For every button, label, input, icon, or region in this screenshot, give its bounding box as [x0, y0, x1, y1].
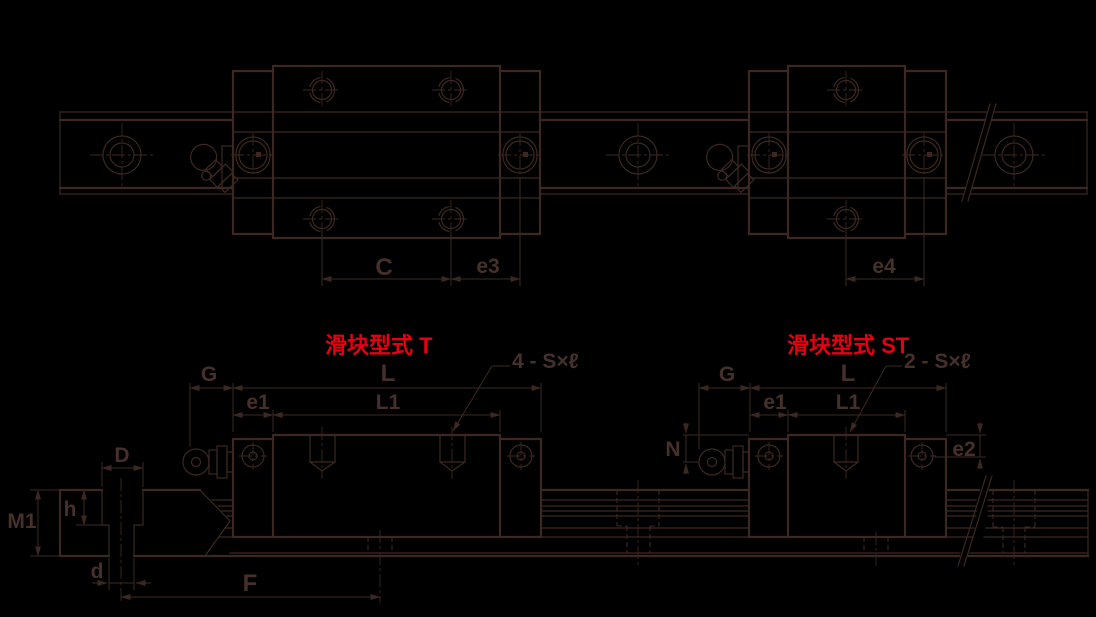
- tap-hole-t2: [440, 435, 465, 471]
- block-st-dimensions: G L e1 L1 2 - S×ℓ N e2: [665, 350, 986, 474]
- block-st-side-view: [699, 427, 946, 537]
- dim-label-e1-st: e1: [763, 391, 787, 414]
- title-block-type-st: 滑块型式 ST: [787, 333, 910, 358]
- grease-nipple-st-side: [699, 446, 749, 478]
- grease-nipple-t-side: [183, 446, 233, 478]
- dim-label-e1-t: e1: [246, 391, 270, 414]
- screw-spec-st: 2 - S×ℓ: [904, 350, 971, 373]
- block-t-top-view: [183, 66, 542, 238]
- block-t-side-view: [183, 427, 541, 537]
- block-t-dimensions: G L e1 L1 4 - S×ℓ: [190, 350, 579, 447]
- block-st-tap-holes: [827, 71, 865, 238]
- dim-label-h: h: [64, 498, 77, 521]
- rail-break-lines-top: [962, 104, 996, 201]
- rail-top-view: [60, 104, 1087, 201]
- dim-label-e2: e2: [952, 438, 975, 461]
- rail-side-view: [121, 476, 1088, 603]
- rail-hole-2: [606, 123, 670, 187]
- tap-hole-t1: [310, 435, 335, 471]
- dim-label-d-counterbore: D: [114, 444, 129, 467]
- block-st-top-view: [699, 66, 946, 238]
- dim-label-l-st: L: [841, 360, 856, 387]
- title-block-type-t: 滑块型式 T: [325, 333, 433, 358]
- rail-hole-1: [90, 123, 154, 187]
- dim-label-n: N: [665, 438, 680, 461]
- linear-guide-technical-drawing: C e3 e4 滑块型式 T 滑块型式 ST: [0, 0, 1096, 617]
- top-view: C e3 e4: [60, 66, 1087, 286]
- dim-label-m1: M1: [7, 510, 36, 533]
- dim-label-l-t: L: [381, 360, 396, 387]
- dim-label-e3: e3: [476, 255, 499, 278]
- rail-hole-3: [982, 123, 1046, 187]
- dim-label-e4: e4: [872, 255, 896, 278]
- dim-label-g-t: G: [201, 363, 217, 386]
- dim-label-d-bore: d: [91, 560, 104, 583]
- dim-label-c: C: [375, 254, 392, 281]
- dim-label-l1-t: L1: [376, 391, 401, 414]
- top-view-dimensions: C e3 e4: [322, 177, 924, 286]
- block-t-tap-holes: [303, 71, 470, 238]
- side-view: G L e1 L1 4 - S×ℓ G L e1 L1 2 - S×ℓ N: [7, 350, 1088, 603]
- dim-label-l1-st: L1: [836, 391, 861, 414]
- dim-label-f: F: [243, 570, 258, 597]
- dim-label-g-st: G: [719, 363, 735, 386]
- rail-section-dimensions: D h M1 d F: [7, 444, 380, 597]
- drawing-canvas: C e3 e4 滑块型式 T 滑块型式 ST: [0, 0, 1096, 617]
- screw-spec-t: 4 - S×ℓ: [512, 350, 579, 373]
- leader-screws-t: [453, 366, 510, 431]
